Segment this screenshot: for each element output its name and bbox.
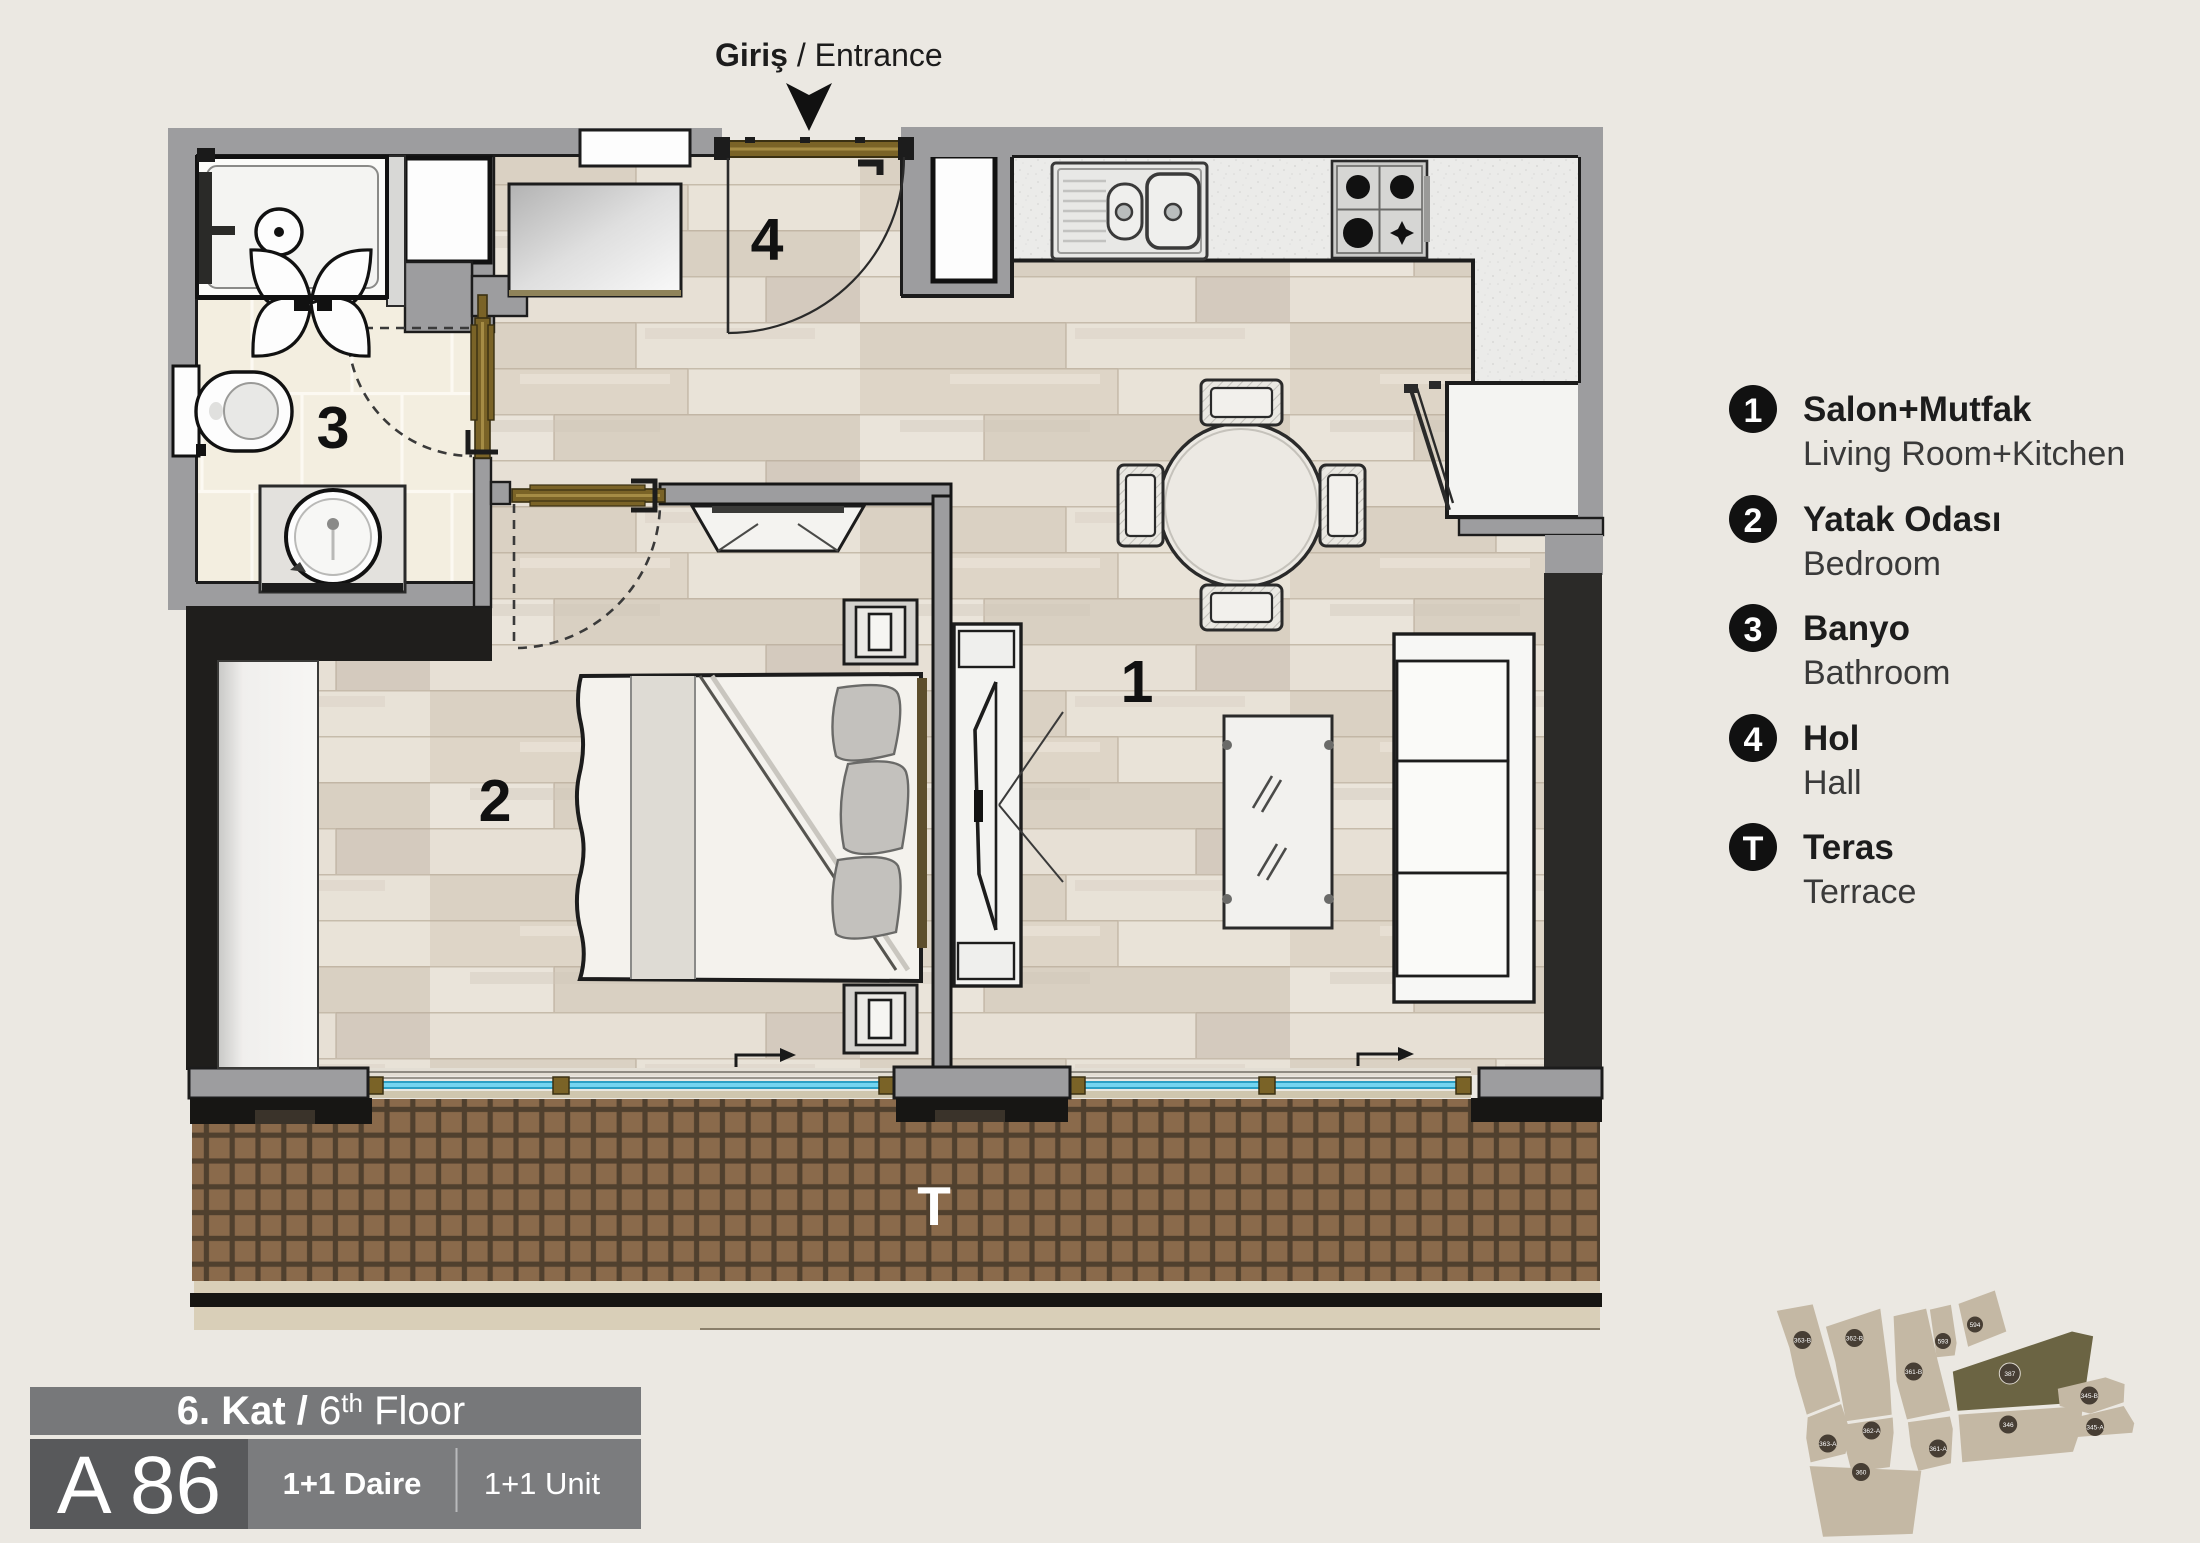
svg-text:3: 3: [317, 395, 350, 461]
svg-text:T: T: [1743, 830, 1764, 868]
svg-text:Banyo: Banyo: [1803, 609, 1910, 648]
svg-text:594: 594: [1970, 1322, 1981, 1329]
svg-text:4: 4: [751, 207, 784, 273]
svg-text:1+1 Unit: 1+1 Unit: [484, 1466, 601, 1501]
svg-text:Hol: Hol: [1803, 719, 1859, 758]
svg-text:362-B: 362-B: [1846, 1336, 1863, 1343]
svg-text:Giriş / Entrance: Giriş / Entrance: [715, 37, 943, 73]
svg-text:6. Kat / 6th Floor: 6. Kat / 6th Floor: [177, 1388, 465, 1433]
svg-text:593: 593: [1938, 1339, 1949, 1346]
svg-text:Bedroom: Bedroom: [1803, 545, 1941, 583]
svg-text:Yatak Odası: Yatak Odası: [1803, 500, 2001, 539]
svg-text:T: T: [917, 1175, 951, 1237]
svg-text:361-A: 361-A: [1929, 1446, 1947, 1453]
svg-text:Hall: Hall: [1803, 764, 1862, 802]
svg-text:1+1 Daire: 1+1 Daire: [283, 1466, 422, 1501]
svg-text:Terrace: Terrace: [1803, 873, 1916, 911]
svg-text:Teras: Teras: [1803, 828, 1894, 867]
svg-text:361-B: 361-B: [1905, 1369, 1922, 1376]
svg-text:1: 1: [1744, 392, 1763, 430]
svg-text:362-A: 362-A: [1863, 1428, 1881, 1435]
svg-text:A 86: A 86: [57, 1440, 221, 1531]
svg-text:Salon+Mutfak: Salon+Mutfak: [1803, 390, 2032, 429]
svg-text:345-A: 345-A: [2086, 1425, 2104, 1432]
svg-text:345-B: 345-B: [2081, 1393, 2098, 1400]
svg-text:1: 1: [1121, 649, 1154, 715]
svg-text:387: 387: [2004, 1371, 2015, 1378]
svg-text:Bathroom: Bathroom: [1803, 654, 1950, 692]
svg-text:Living Room+Kitchen: Living Room+Kitchen: [1803, 435, 2125, 473]
svg-text:2: 2: [1744, 502, 1763, 540]
svg-text:363-B: 363-B: [1794, 1338, 1811, 1345]
svg-text:4: 4: [1744, 721, 1763, 759]
svg-text:346: 346: [2003, 1422, 2014, 1429]
svg-text:360: 360: [1856, 1470, 1867, 1477]
svg-text:3: 3: [1744, 611, 1763, 649]
svg-text:2: 2: [479, 768, 512, 834]
svg-text:363-A: 363-A: [1819, 1441, 1837, 1448]
